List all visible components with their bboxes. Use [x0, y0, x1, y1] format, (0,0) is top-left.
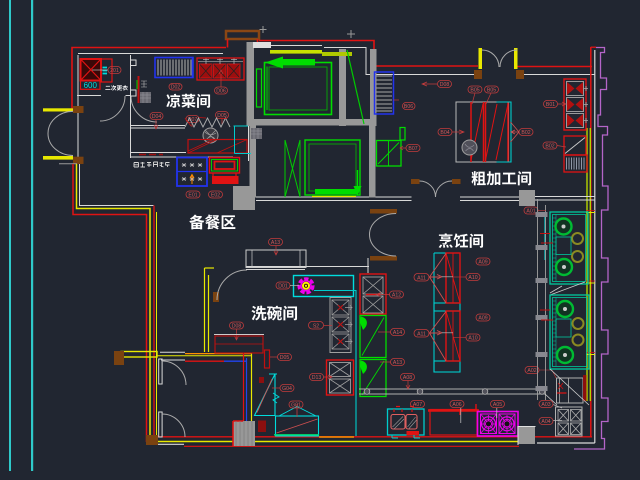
svg-text:G04: G04	[282, 386, 292, 392]
svg-text:B04: B04	[440, 130, 449, 136]
svg-text:D06: D06	[216, 89, 226, 95]
svg-text:E01: E01	[188, 193, 197, 199]
svg-text:G01: G01	[291, 403, 301, 409]
svg-text:B05: B05	[487, 88, 496, 94]
svg-text:B02: B02	[545, 144, 554, 150]
svg-text:D04: D04	[152, 114, 162, 120]
svg-text:A06: A06	[452, 402, 461, 408]
svg-text:A01: A01	[526, 209, 535, 215]
svg-text:A10: A10	[468, 336, 477, 342]
svg-text:600: 600	[84, 81, 98, 90]
svg-text:D08: D08	[232, 324, 242, 330]
svg-text:A08: A08	[403, 375, 412, 381]
svg-text:A04: A04	[541, 419, 550, 425]
svg-text:S2: S2	[313, 324, 319, 330]
svg-text:A03: A03	[541, 402, 550, 408]
svg-text:A07: A07	[413, 402, 422, 408]
svg-text:B01: B01	[546, 102, 555, 108]
svg-text:D01: D01	[278, 284, 288, 290]
svg-text:A09: A09	[478, 316, 487, 322]
svg-text:B05: B05	[470, 88, 479, 94]
svg-text:A12: A12	[392, 293, 401, 299]
svg-text:A02: A02	[527, 368, 536, 374]
svg-text:A05: A05	[493, 402, 502, 408]
svg-text:B02: B02	[521, 130, 530, 136]
svg-text:B06: B06	[404, 104, 413, 110]
svg-text:E02: E02	[211, 193, 220, 199]
svg-text:A10: A10	[468, 275, 477, 281]
svg-text:D02: D02	[171, 85, 181, 91]
svg-text:A13: A13	[393, 360, 402, 366]
svg-text:D08: D08	[440, 82, 450, 88]
svg-text:D05: D05	[280, 355, 290, 361]
svg-text:A13: A13	[271, 240, 280, 246]
svg-text:A11: A11	[417, 332, 426, 338]
svg-text:A11: A11	[417, 276, 426, 282]
svg-text:201: 201	[110, 68, 119, 74]
svg-text:D13: D13	[312, 375, 322, 381]
svg-text:A14: A14	[393, 330, 402, 336]
svg-text:B07: B07	[408, 146, 417, 152]
svg-text:A09: A09	[478, 260, 487, 266]
